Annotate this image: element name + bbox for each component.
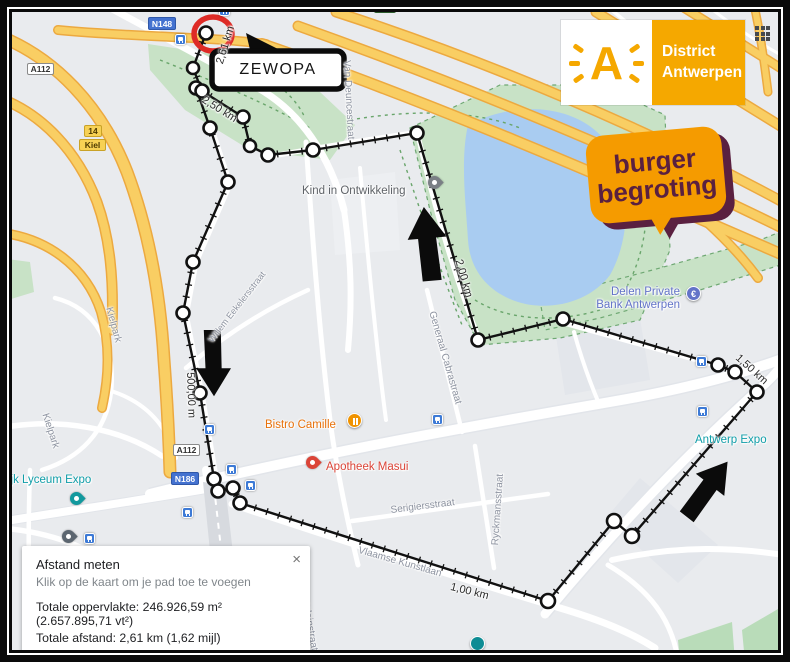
poi-kind-in-ontwikkeling[interactable]: Kind in Ontwikkeling bbox=[302, 185, 406, 197]
route-badge-green bbox=[374, 12, 396, 13]
total-area-value: Totale oppervlakte: 246.926,59 m² (2.657… bbox=[36, 600, 296, 628]
panel-title: Afstand meten bbox=[36, 557, 296, 572]
route-badge-n148: N148 bbox=[148, 17, 176, 30]
transit-stop-icon[interactable] bbox=[175, 34, 186, 45]
poi-bistro-camille[interactable]: Bistro Camille bbox=[265, 419, 336, 431]
measure-distance-panel: × Afstand meten Klik op de kaart om je p… bbox=[22, 546, 310, 650]
transit-stop-icon[interactable] bbox=[245, 480, 256, 491]
map-viewport[interactable]: ZEWOPA 2,61 km 2,50 km 2,00 km 1,50 km 1… bbox=[12, 12, 778, 650]
ray-icon bbox=[633, 61, 644, 66]
route-badge-a112-top: A112 bbox=[27, 63, 54, 75]
zewopa-callout-label: ZEWOPA bbox=[226, 61, 330, 79]
transit-stop-icon[interactable] bbox=[696, 356, 707, 367]
fork-knife-icon bbox=[353, 418, 355, 425]
poi-delen-private-bank[interactable]: Delen Private Bank Antwerpen bbox=[596, 286, 680, 312]
route-badge-n186: N186 bbox=[171, 472, 199, 485]
ray-icon bbox=[569, 61, 580, 66]
total-distance-value: Totale afstand: 2,61 km (1,62 mijl) bbox=[36, 631, 296, 645]
ray-icon bbox=[629, 73, 641, 83]
district-logo-text: District Antwerpen bbox=[652, 20, 745, 105]
ray-icon bbox=[629, 43, 641, 53]
speech-tail bbox=[650, 214, 676, 236]
transit-stop-icon[interactable] bbox=[219, 12, 230, 16]
district-logo-line2: Antwerpen bbox=[662, 63, 745, 84]
district-logo-letter: A bbox=[590, 36, 623, 90]
poi-antwerp-expo[interactable]: Antwerp Expo bbox=[695, 434, 767, 446]
close-icon[interactable]: × bbox=[292, 552, 301, 567]
bank-euro-pin-icon[interactable]: € bbox=[686, 286, 701, 301]
inner-frame: ZEWOPA 2,61 km 2,50 km 2,00 km 1,50 km 1… bbox=[7, 7, 783, 655]
district-logo-line1: District bbox=[662, 42, 745, 63]
burger-begroting-logo: burger begroting bbox=[584, 125, 727, 225]
route-badge-14: 14 bbox=[84, 125, 102, 137]
route-badge-kiel: Kiel bbox=[79, 139, 106, 151]
speech-bubble: burger begroting bbox=[584, 125, 727, 225]
transit-stop-icon[interactable] bbox=[432, 414, 443, 425]
transit-stop-icon[interactable] bbox=[182, 507, 193, 518]
grid-menu-icon[interactable] bbox=[755, 26, 771, 42]
district-antwerpen-logo: A District Antwerpen bbox=[561, 20, 745, 105]
transit-stop-icon[interactable] bbox=[226, 464, 237, 475]
panel-subtitle: Klik op de kaart om je pad toe te voegen bbox=[36, 575, 296, 589]
poi-pin-bottom-icon[interactable] bbox=[470, 636, 485, 650]
poi-lyceum-expo[interactable]: ijk Lyceum Expo bbox=[12, 474, 91, 486]
screenshot-frame: ZEWOPA 2,61 km 2,50 km 2,00 km 1,50 km 1… bbox=[0, 0, 790, 662]
distance-label-500m: 500,00 m bbox=[184, 372, 198, 418]
transit-stop-icon[interactable] bbox=[697, 406, 708, 417]
restaurant-pin-icon[interactable] bbox=[347, 413, 362, 428]
transit-stop-icon[interactable] bbox=[84, 533, 95, 544]
poi-delen-line2: Bank Antwerpen bbox=[596, 299, 680, 312]
district-logo-mark: A bbox=[561, 20, 652, 105]
poi-apotheek-masui[interactable]: Apotheek Masui bbox=[326, 461, 408, 473]
route-badge-a112-mid: A112 bbox=[173, 444, 200, 456]
ray-icon bbox=[573, 43, 585, 53]
transit-stop-icon[interactable] bbox=[204, 424, 215, 435]
poi-delen-line1: Delen Private bbox=[596, 286, 680, 299]
ray-icon bbox=[573, 73, 585, 83]
